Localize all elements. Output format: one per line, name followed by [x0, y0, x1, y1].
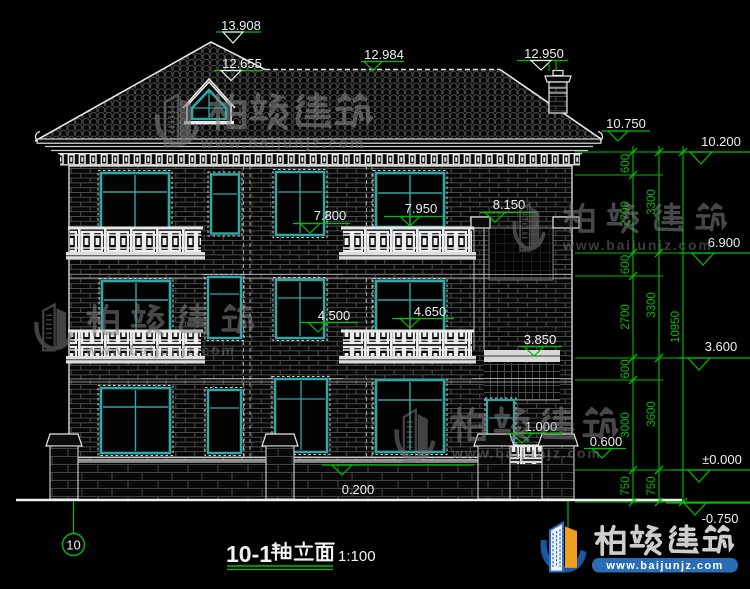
svg-text:13.908: 13.908 — [221, 18, 261, 33]
svg-text:0.200: 0.200 — [342, 482, 375, 497]
svg-text:12.655: 12.655 — [222, 56, 262, 71]
svg-text:10-1: 10-1 — [226, 541, 272, 567]
svg-text:10: 10 — [66, 538, 80, 553]
svg-text:10950: 10950 — [670, 311, 682, 343]
svg-text:7.800: 7.800 — [314, 208, 347, 223]
svg-text:750: 750 — [620, 476, 632, 495]
svg-text:600: 600 — [620, 359, 632, 378]
svg-text:www.baijunjz.com: www.baijunjz.com — [605, 560, 723, 572]
svg-text:±0.000: ±0.000 — [702, 452, 742, 467]
svg-text:2700: 2700 — [620, 304, 632, 330]
svg-text:10.200: 10.200 — [701, 134, 741, 149]
svg-text:600: 600 — [620, 255, 632, 274]
svg-text:www.baijunjz.com: www.baijunjz.com — [562, 237, 713, 253]
svg-text:3.850: 3.850 — [524, 332, 557, 347]
svg-text:3000: 3000 — [620, 412, 632, 438]
svg-text:www.baijunjz.com: www.baijunjz.com — [85, 342, 236, 358]
svg-text:750: 750 — [646, 476, 658, 495]
svg-text:3.600: 3.600 — [705, 339, 738, 354]
svg-text:3300: 3300 — [646, 292, 658, 318]
svg-text:600: 600 — [620, 154, 632, 173]
svg-text:4.500: 4.500 — [318, 308, 351, 323]
svg-text:12.950: 12.950 — [524, 46, 564, 61]
svg-text:4.650: 4.650 — [414, 304, 447, 319]
svg-text:-0.750: -0.750 — [702, 511, 739, 526]
svg-text:3600: 3600 — [646, 401, 658, 427]
svg-text:1:100: 1:100 — [338, 548, 376, 565]
svg-text:7.950: 7.950 — [405, 201, 438, 216]
svg-text:10.750: 10.750 — [606, 116, 646, 131]
svg-text:www.baijunjz.com: www.baijunjz.com — [200, 135, 366, 152]
svg-text:www.baijunjz.com: www.baijunjz.com — [451, 445, 602, 461]
svg-text:12.984: 12.984 — [364, 47, 404, 62]
